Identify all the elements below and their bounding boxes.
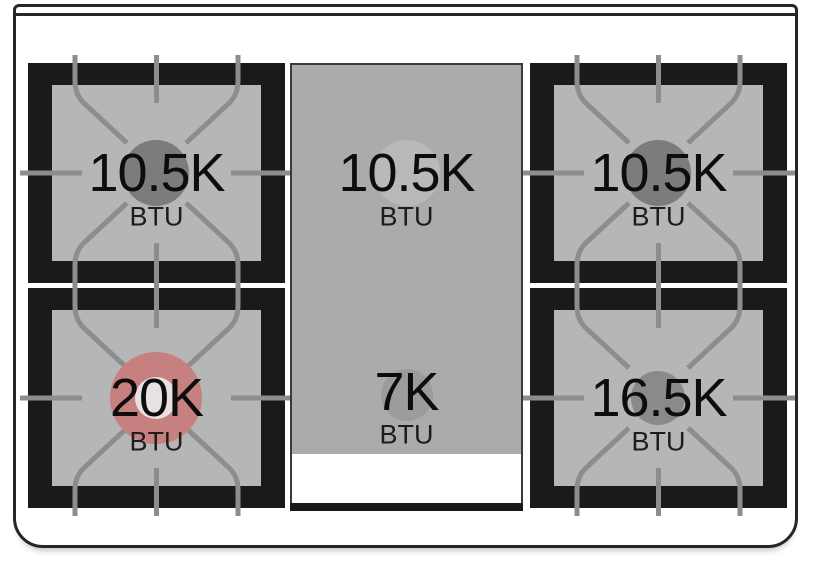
griddle-front-panel (290, 454, 523, 503)
burner-btu-value: 10.5K (88, 146, 224, 200)
burner-btu-unit-label: BTU (632, 204, 686, 231)
burner-btu-unit-label: BTU (130, 429, 184, 456)
griddle: 10.5K BTU 7K BTU (290, 63, 523, 510)
burner-back-right: 10.5K BTU (530, 63, 787, 283)
cooktop-diagram: 10.5K BTU 10.5K BTU 20K BTU 16.5K BTU 10… (0, 0, 816, 568)
griddle-front-btu-unit-label: BTU (380, 422, 434, 449)
back-edge-line (16, 13, 795, 16)
burner-back-left: 10.5K BTU (28, 63, 285, 283)
griddle-base-bar (290, 503, 523, 511)
griddle-front-btu-value: 7K (374, 365, 438, 419)
burner-front-left: 20K BTU (28, 288, 285, 508)
burner-front-right: 16.5K BTU (530, 288, 787, 508)
griddle-back-btu-unit-label: BTU (380, 204, 434, 231)
burner-btu-unit-label: BTU (130, 204, 184, 231)
griddle-back-btu-value: 10.5K (338, 146, 474, 200)
burner-btu-value: 20K (110, 371, 203, 425)
burner-btu-value: 10.5K (590, 146, 726, 200)
burner-btu-value: 16.5K (590, 371, 726, 425)
burner-btu-unit-label: BTU (632, 429, 686, 456)
